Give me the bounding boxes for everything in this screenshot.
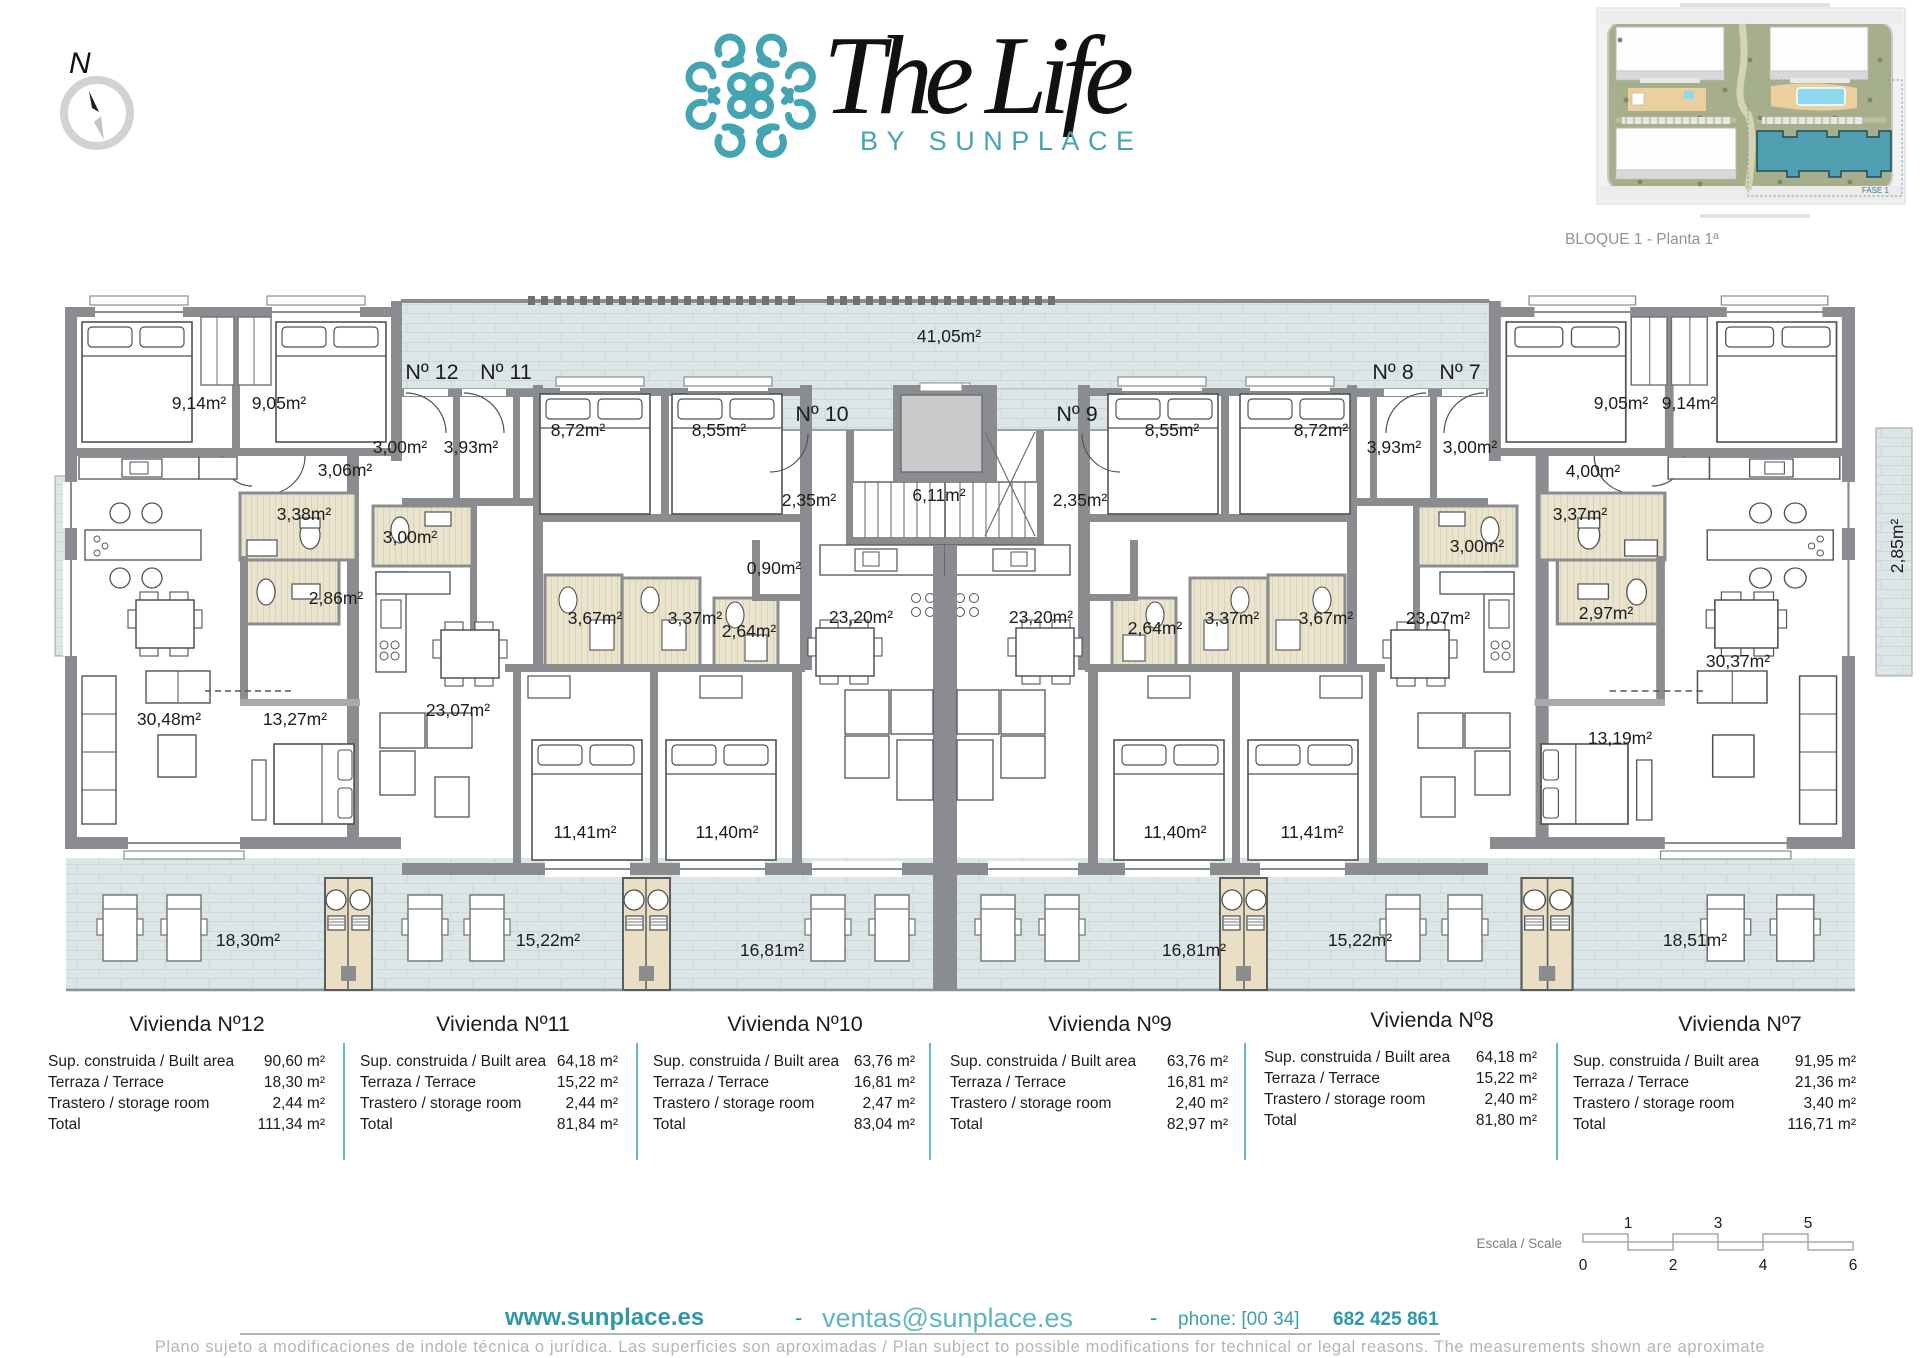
svg-text:9,05m²: 9,05m² xyxy=(252,393,307,413)
svg-text:Nº 11: Nº 11 xyxy=(480,360,532,384)
svg-text:9,05m²: 9,05m² xyxy=(1594,393,1649,413)
svg-text:Trastero / storage room: Trastero / storage room xyxy=(1573,1095,1734,1112)
svg-text:18,51m²: 18,51m² xyxy=(1663,930,1727,950)
svg-text:Nº 10: Nº 10 xyxy=(795,402,848,426)
svg-text:Vivienda Nº10: Vivienda Nº10 xyxy=(727,1012,862,1036)
svg-text:3,00m²: 3,00m² xyxy=(383,527,438,547)
svg-text:Total: Total xyxy=(360,1116,393,1133)
svg-text:Terraza / Terrace: Terraza / Terrace xyxy=(360,1074,476,1091)
svg-text:11,41m²: 11,41m² xyxy=(554,822,617,842)
svg-text:Escala / Scale: Escala / Scale xyxy=(1476,1236,1562,1251)
svg-text:3,37m²: 3,37m² xyxy=(668,608,723,628)
svg-text:Total: Total xyxy=(48,1116,81,1133)
svg-text:2,35m²: 2,35m² xyxy=(1053,490,1108,510)
svg-text:3,67m²: 3,67m² xyxy=(1299,608,1354,628)
svg-text:18,30 m²: 18,30 m² xyxy=(264,1074,325,1091)
svg-text:2,40 m²: 2,40 m² xyxy=(1175,1095,1228,1112)
svg-text:Trastero / storage room: Trastero / storage room xyxy=(1264,1091,1425,1108)
svg-text:90,60 m²: 90,60 m² xyxy=(264,1053,325,1070)
svg-text:Total: Total xyxy=(1264,1112,1297,1129)
svg-text:2,85m²: 2,85m² xyxy=(1887,519,1907,574)
svg-text:682 425 861: 682 425 861 xyxy=(1333,1309,1439,1330)
svg-text:3,93m²: 3,93m² xyxy=(1367,437,1422,457)
svg-text:3,37m²: 3,37m² xyxy=(1553,504,1608,524)
svg-text:FASE 1: FASE 1 xyxy=(1862,186,1890,195)
svg-text:63,76 m²: 63,76 m² xyxy=(854,1053,915,1070)
svg-text:Trastero / storage room: Trastero / storage room xyxy=(653,1095,814,1112)
svg-text:Nº 9: Nº 9 xyxy=(1056,402,1097,426)
svg-text:4,00m²: 4,00m² xyxy=(1566,461,1621,481)
svg-text:3,00m²: 3,00m² xyxy=(373,437,428,457)
svg-text:9,14m²: 9,14m² xyxy=(172,393,227,413)
svg-text:8,72m²: 8,72m² xyxy=(1294,420,1349,440)
svg-text:2: 2 xyxy=(1669,1257,1678,1274)
svg-text:-: - xyxy=(795,1305,802,1330)
svg-text:63,76 m²: 63,76 m² xyxy=(1167,1053,1228,1070)
svg-text:8,55m²: 8,55m² xyxy=(692,420,747,440)
svg-text:BLOQUE 1 - Planta 1ª: BLOQUE 1 - Planta 1ª xyxy=(1565,231,1719,248)
svg-text:16,81m²: 16,81m² xyxy=(1162,940,1226,960)
svg-text:13,27m²: 13,27m² xyxy=(263,709,327,729)
svg-text:8,55m²: 8,55m² xyxy=(1145,420,1200,440)
svg-text:9,14m²: 9,14m² xyxy=(1662,393,1717,413)
svg-text:Plano sujeto a modificaciones: Plano sujeto a modificaciones de indole … xyxy=(155,1338,1765,1356)
svg-text:6,11m²: 6,11m² xyxy=(912,485,965,505)
svg-text:-: - xyxy=(1150,1305,1157,1330)
svg-text:83,04 m²: 83,04 m² xyxy=(854,1116,915,1133)
svg-text:81,80 m²: 81,80 m² xyxy=(1476,1112,1537,1129)
svg-text:Terraza / Terrace: Terraza / Terrace xyxy=(950,1074,1066,1091)
svg-text:30,48m²: 30,48m² xyxy=(137,709,201,729)
svg-text:116,71 m²: 116,71 m² xyxy=(1787,1116,1856,1133)
svg-text:Total: Total xyxy=(1573,1116,1606,1133)
svg-text:2,40 m²: 2,40 m² xyxy=(1484,1091,1537,1108)
svg-text:5: 5 xyxy=(1804,1215,1813,1232)
svg-text:Sup. construida / Built area: Sup. construida / Built area xyxy=(950,1053,1136,1070)
svg-text:3,06m²: 3,06m² xyxy=(318,460,373,480)
svg-text:15,22m²: 15,22m² xyxy=(516,930,580,950)
svg-text:Terraza / Terrace: Terraza / Terrace xyxy=(48,1074,164,1091)
svg-text:2,86m²: 2,86m² xyxy=(309,588,364,608)
svg-text:3,00m²: 3,00m² xyxy=(1450,536,1505,556)
svg-text:3,67m²: 3,67m² xyxy=(568,608,623,628)
svg-text:Trastero / storage room: Trastero / storage room xyxy=(360,1095,521,1112)
svg-text:3,00m²: 3,00m² xyxy=(1443,437,1498,457)
svg-text:23,20m²: 23,20m² xyxy=(1009,607,1073,627)
svg-text:11,40m²: 11,40m² xyxy=(696,822,759,842)
svg-text:Vivienda Nº7: Vivienda Nº7 xyxy=(1678,1012,1801,1036)
svg-text:0,90m²: 0,90m² xyxy=(747,558,802,578)
svg-text:11,41m²: 11,41m² xyxy=(1281,822,1344,842)
svg-text:1: 1 xyxy=(1624,1215,1633,1232)
svg-text:11,40m²: 11,40m² xyxy=(1144,822,1207,842)
svg-text:0: 0 xyxy=(1579,1257,1588,1274)
svg-text:3: 3 xyxy=(1714,1215,1723,1232)
svg-text:8,72m²: 8,72m² xyxy=(551,420,606,440)
svg-text:23,07m²: 23,07m² xyxy=(1406,608,1470,628)
svg-text:3,38m²: 3,38m² xyxy=(277,504,332,524)
svg-text:111,34 m²: 111,34 m² xyxy=(258,1116,326,1133)
svg-text:2,35m²: 2,35m² xyxy=(782,490,837,510)
svg-text:phone: [00 34]: phone: [00 34] xyxy=(1178,1309,1300,1330)
svg-text:64,18 m²: 64,18 m² xyxy=(557,1053,618,1070)
svg-text:2,44 m²: 2,44 m² xyxy=(565,1095,618,1112)
svg-text:Trastero / storage room: Trastero / storage room xyxy=(48,1095,209,1112)
svg-text:Terraza / Terrace: Terraza / Terrace xyxy=(653,1074,769,1091)
svg-text:16,81 m²: 16,81 m² xyxy=(854,1074,915,1091)
svg-text:2,97m²: 2,97m² xyxy=(1579,603,1634,623)
svg-text:ventas@sunplace.es: ventas@sunplace.es xyxy=(822,1303,1073,1333)
svg-text:13,19m²: 13,19m² xyxy=(1588,728,1652,748)
svg-text:15,22m²: 15,22m² xyxy=(1328,930,1392,950)
svg-text:Sup. construida / Built area: Sup. construida / Built area xyxy=(48,1053,234,1070)
svg-text:BY SUNPLACE: BY SUNPLACE xyxy=(860,126,1137,156)
svg-text:3,40 m²: 3,40 m² xyxy=(1803,1095,1856,1112)
svg-text:Vivienda Nº11: Vivienda Nº11 xyxy=(436,1012,570,1036)
svg-text:Trastero / storage room: Trastero / storage room xyxy=(950,1095,1111,1112)
svg-text:64,18 m²: 64,18 m² xyxy=(1476,1049,1537,1066)
svg-text:Sup. construida / Built area: Sup. construida / Built area xyxy=(1264,1049,1450,1066)
svg-text:Sup. construida / Built area: Sup. construida / Built area xyxy=(1573,1053,1759,1070)
svg-text:The Life: The Life xyxy=(823,14,1134,138)
svg-text:2,64m²: 2,64m² xyxy=(1128,618,1183,638)
svg-text:Vivienda Nº8: Vivienda Nº8 xyxy=(1370,1008,1493,1032)
svg-text:Terraza / Terrace: Terraza / Terrace xyxy=(1573,1074,1689,1091)
svg-text:21,36 m²: 21,36 m² xyxy=(1795,1074,1856,1091)
svg-text:2,44 m²: 2,44 m² xyxy=(272,1095,325,1112)
svg-text:81,84 m²: 81,84 m² xyxy=(557,1116,618,1133)
svg-text:15,22 m²: 15,22 m² xyxy=(557,1074,618,1091)
svg-text:Nº 12: Nº 12 xyxy=(405,360,458,384)
svg-text:Nº 7: Nº 7 xyxy=(1439,360,1480,384)
svg-text:41,05m²: 41,05m² xyxy=(917,326,981,346)
svg-text:Sup. construida / Built area: Sup. construida / Built area xyxy=(360,1053,546,1070)
svg-text:Total: Total xyxy=(653,1116,686,1133)
svg-text:16,81m²: 16,81m² xyxy=(740,940,804,960)
svg-text:Sup. construida / Built area: Sup. construida / Built area xyxy=(653,1053,839,1070)
svg-text:Total: Total xyxy=(950,1116,983,1133)
svg-text:16,81 m²: 16,81 m² xyxy=(1167,1074,1228,1091)
svg-text:23,20m²: 23,20m² xyxy=(829,607,893,627)
svg-text:2,64m²: 2,64m² xyxy=(722,621,777,641)
svg-text:Vivienda Nº12: Vivienda Nº12 xyxy=(129,1012,264,1036)
svg-text:www.sunplace.es: www.sunplace.es xyxy=(504,1304,704,1331)
svg-text:82,97 m²: 82,97 m² xyxy=(1167,1116,1228,1133)
svg-text:Terraza / Terrace: Terraza / Terrace xyxy=(1264,1070,1380,1087)
svg-text:2,47 m²: 2,47 m² xyxy=(862,1095,915,1112)
svg-text:15,22 m²: 15,22 m² xyxy=(1476,1070,1537,1087)
svg-text:3,37m²: 3,37m² xyxy=(1205,608,1260,628)
svg-text:N: N xyxy=(69,47,91,80)
svg-text:18,30m²: 18,30m² xyxy=(216,930,280,950)
svg-text:23,07m²: 23,07m² xyxy=(426,700,490,720)
svg-text:6: 6 xyxy=(1849,1257,1858,1274)
svg-text:4: 4 xyxy=(1759,1257,1768,1274)
svg-text:91,95 m²: 91,95 m² xyxy=(1795,1053,1856,1070)
svg-text:3,93m²: 3,93m² xyxy=(444,437,499,457)
svg-text:30,37m²: 30,37m² xyxy=(1706,651,1770,671)
svg-text:Nº 8: Nº 8 xyxy=(1372,360,1413,384)
svg-text:Vivienda Nº9: Vivienda Nº9 xyxy=(1048,1012,1171,1036)
